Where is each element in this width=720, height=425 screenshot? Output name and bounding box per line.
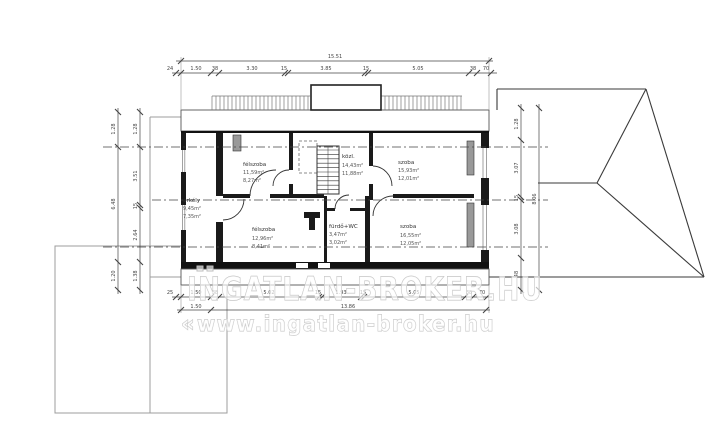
dim-label: 25: [167, 290, 173, 296]
dim-label: 15: [281, 66, 287, 72]
dim-label: 5.05: [412, 66, 423, 72]
dim-label: 1.28: [514, 118, 520, 129]
dim-label: 38: [212, 66, 218, 72]
room-area1: 9,45m²: [183, 206, 201, 212]
room-name: szoba: [398, 160, 414, 166]
watermark-chevrons: «: [181, 312, 196, 336]
room-name: szoba: [400, 224, 416, 230]
dim-label: 3.08: [514, 223, 520, 234]
dormer-outline: [311, 85, 381, 110]
dim-label: 1.38: [133, 270, 139, 281]
dim-chain-top_chain: [172, 70, 497, 76]
room-area1: 16,55m²: [400, 233, 421, 239]
room-name: erkély: [183, 197, 201, 204]
room-area1: 12,96m²: [252, 236, 273, 242]
dim-label: 3.30: [246, 66, 257, 72]
room-area2: 12,01m²: [398, 176, 419, 182]
room-name: fürdő+WC: [329, 224, 358, 230]
dim-label: 6.48: [111, 198, 117, 209]
dim-label: 15.51: [328, 54, 342, 60]
room-area1: 14,43m²: [342, 163, 363, 169]
dim-label: 38: [470, 66, 476, 72]
room-area2: 7,35m²: [183, 214, 201, 220]
room-area1: 11,59m²: [243, 170, 264, 176]
dim-label: 3.07: [514, 162, 520, 173]
room-name: félszoba: [243, 161, 266, 168]
dim-label: 1.28: [111, 123, 117, 134]
dim-label: 3.85: [320, 66, 331, 72]
room-area2: 8,41m²: [252, 244, 270, 250]
dim-label: 15: [363, 66, 369, 72]
room-erkely: erkély 9,45m² 7,35m²: [183, 197, 201, 220]
eaves-top-band: [181, 110, 489, 135]
room-name: közl.: [342, 154, 355, 160]
dim-chain-left_inner: [137, 108, 143, 294]
dim-label: 70: [483, 66, 489, 72]
dim-label: 8.06: [532, 193, 538, 204]
dim-label: 1.20: [111, 270, 117, 281]
dim-label: 1.50: [190, 66, 201, 72]
watermark: INGATLAN-BROKER.HU « www.ingatlan-broker…: [181, 266, 543, 336]
watermark-url: www.ingatlan-broker.hu: [197, 312, 495, 336]
room-area2: 3,02m²: [329, 240, 347, 246]
floor-plan-page: félszoba 11,59m² 8,27m² közl. 14,43m² 11…: [0, 0, 720, 425]
room-name: félszoba: [252, 226, 275, 233]
dim-label: 15: [133, 203, 139, 209]
dim-label: 15: [514, 195, 520, 201]
room-area1: 15,93m²: [398, 168, 419, 174]
room-area2: 12,05m²: [400, 241, 421, 247]
dim-label: 1.28: [133, 123, 139, 134]
dim-label: 3.51: [133, 170, 139, 181]
watermark-title: INGATLAN-BROKER.HU: [187, 270, 543, 308]
dim-label: 24: [167, 66, 173, 72]
room-area1: 3,47m²: [329, 232, 347, 238]
room-area2: 8,27m²: [243, 178, 261, 184]
floor-plan-drawing: félszoba 11,59m² 8,27m² közl. 14,43m² 11…: [0, 0, 720, 425]
room-area2: 11,88m²: [342, 171, 363, 177]
dim-label: 2.64: [133, 229, 139, 240]
